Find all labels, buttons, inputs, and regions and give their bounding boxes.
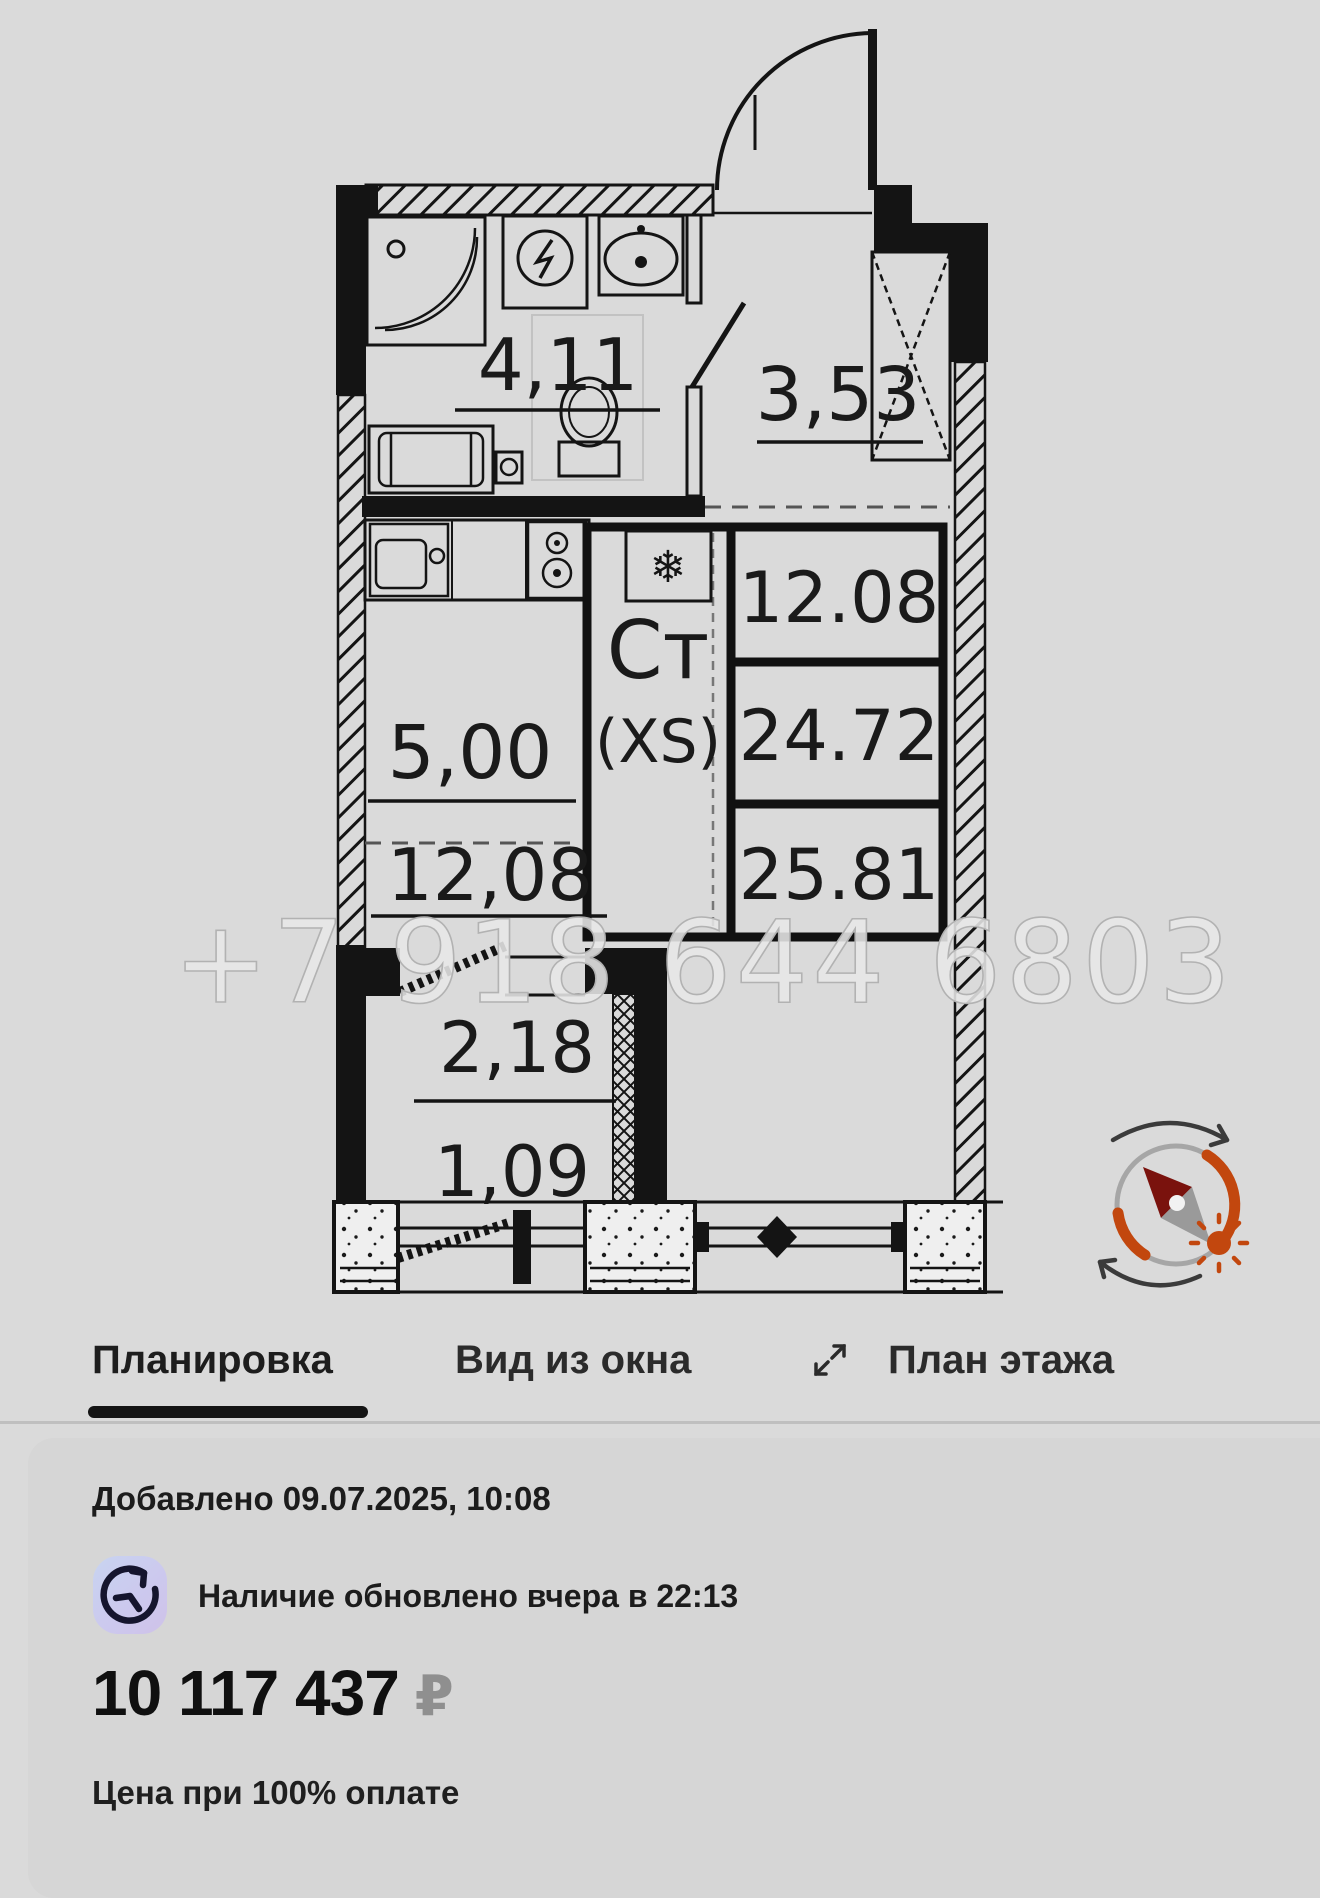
living-space-value: 12.08	[739, 557, 939, 639]
kitchen	[365, 520, 589, 600]
window-joint-node	[757, 1216, 797, 1258]
compass-icon	[1100, 1123, 1247, 1285]
offer-details-card: Добавлено 09.07.2025, 10:08 Наличие обно…	[28, 1438, 1320, 1898]
expand-icon[interactable]	[806, 1336, 854, 1384]
ruble-currency-symbol: ₽	[415, 1663, 454, 1729]
added-date-text: Добавлено 09.07.2025, 10:08	[92, 1480, 551, 1518]
availability-text: Наличие обновлено вчера в 22:13	[198, 1578, 738, 1615]
clock-refresh-icon	[93, 1556, 167, 1634]
bath-cabinet-icon	[369, 426, 522, 493]
entrance-door	[713, 29, 877, 213]
bathroom-area-label: 4,11	[478, 323, 638, 407]
hall-area-label: 3,53	[756, 352, 921, 438]
kitchen-area-label: 5,00	[388, 710, 553, 796]
price-row: 10 117 437 ₽	[92, 1656, 454, 1730]
bath-sink-icon	[599, 216, 683, 295]
window-post	[585, 1202, 695, 1292]
window-wall	[334, 1202, 1003, 1292]
bathroom-door-leaf	[692, 303, 744, 387]
apartment-size-code: (XS)	[595, 707, 721, 777]
floor-plan-svg: ❄ Ст (XS) 12.08 24.72 25.81 4,11 3,53 5,…	[0, 0, 1320, 1330]
gallery-tabs: Планировка Вид из окна План этажа	[0, 1330, 1320, 1422]
floor-plan-image: ❄ Ст (XS) 12.08 24.72 25.81 4,11 3,53 5,…	[0, 0, 1320, 1330]
price-value: 10 117 437	[92, 1656, 399, 1730]
availability-badge	[93, 1556, 167, 1634]
shower-icon	[367, 217, 485, 345]
listing-page: { "floorplan": { "rooms": { "bathroom_ar…	[0, 0, 1320, 1878]
washer-icon	[503, 216, 587, 308]
area-without-balcony-value: 24.72	[739, 695, 939, 777]
window-post	[334, 1202, 398, 1292]
sun-icon	[1191, 1215, 1247, 1271]
kitchen-sink-icon	[370, 524, 448, 596]
fridge-snowflake-icon: ❄	[650, 542, 687, 593]
tab-floor-map[interactable]: План этажа	[888, 1338, 1114, 1383]
watermark-phone: +7 918 644 6803	[173, 896, 1235, 1029]
tab-window-view[interactable]: Вид из окна	[455, 1338, 691, 1383]
tab-floorplan[interactable]: Планировка	[92, 1338, 333, 1383]
tabs-divider	[0, 1421, 1320, 1424]
stove-icon	[528, 522, 586, 598]
price-note: Цена при 100% оплате	[92, 1774, 459, 1812]
apartment-type: Ст	[607, 604, 709, 697]
active-tab-underline	[88, 1406, 368, 1418]
plan-info-box: ❄ Ст (XS) 12.08 24.72 25.81	[587, 527, 943, 937]
rotate-cw-arrow	[1113, 1123, 1227, 1140]
window-post	[905, 1202, 985, 1292]
